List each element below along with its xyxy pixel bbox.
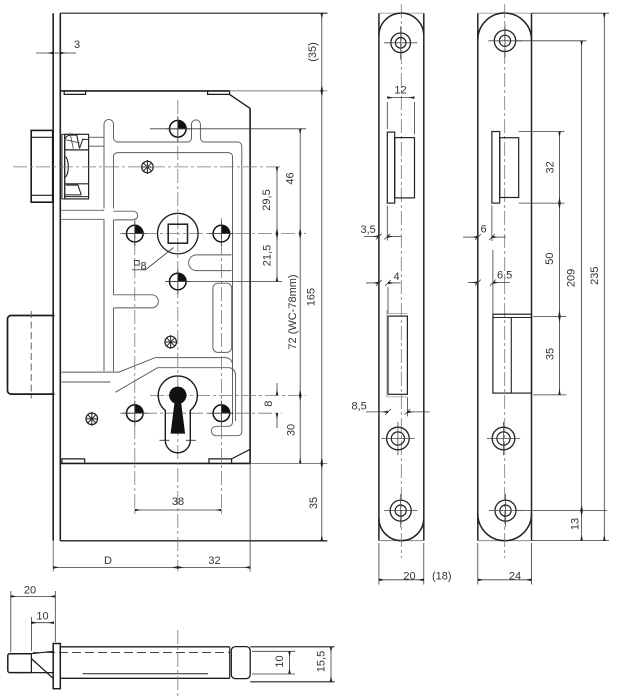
svg-text:72 (WC-78mm): 72 (WC-78mm) bbox=[287, 274, 299, 349]
svg-text:12: 12 bbox=[394, 85, 406, 97]
svg-text:21,5: 21,5 bbox=[262, 245, 274, 266]
svg-text:235: 235 bbox=[589, 267, 601, 285]
svg-text:20: 20 bbox=[403, 571, 415, 583]
svg-text:35: 35 bbox=[308, 497, 320, 509]
svg-text:46: 46 bbox=[285, 172, 297, 184]
svg-text:6,5: 6,5 bbox=[497, 270, 512, 282]
svg-text:D: D bbox=[104, 555, 112, 567]
svg-text:30: 30 bbox=[286, 424, 298, 436]
svg-text:8: 8 bbox=[141, 261, 147, 273]
svg-text:(18): (18) bbox=[432, 571, 452, 583]
svg-text:29,5: 29,5 bbox=[261, 189, 273, 210]
svg-text:24: 24 bbox=[509, 571, 521, 583]
svg-text:3,5: 3,5 bbox=[361, 224, 376, 236]
svg-text:6: 6 bbox=[481, 224, 487, 236]
svg-text:15,5: 15,5 bbox=[316, 651, 328, 672]
svg-text:13: 13 bbox=[570, 518, 582, 530]
svg-text:32: 32 bbox=[208, 555, 220, 567]
svg-text:8,5: 8,5 bbox=[352, 401, 367, 413]
svg-text:20: 20 bbox=[24, 585, 36, 597]
svg-text:209: 209 bbox=[566, 269, 578, 287]
svg-text:35: 35 bbox=[545, 348, 557, 360]
svg-text:10: 10 bbox=[36, 611, 48, 623]
svg-text:(35): (35) bbox=[307, 42, 319, 62]
svg-text:4: 4 bbox=[394, 271, 400, 283]
svg-text:32: 32 bbox=[545, 161, 557, 173]
svg-text:8: 8 bbox=[263, 401, 275, 407]
svg-text:10: 10 bbox=[274, 655, 286, 667]
svg-text:38: 38 bbox=[172, 496, 184, 508]
svg-text:3: 3 bbox=[74, 39, 80, 51]
svg-text:50: 50 bbox=[544, 252, 556, 264]
svg-text:165: 165 bbox=[306, 288, 318, 306]
